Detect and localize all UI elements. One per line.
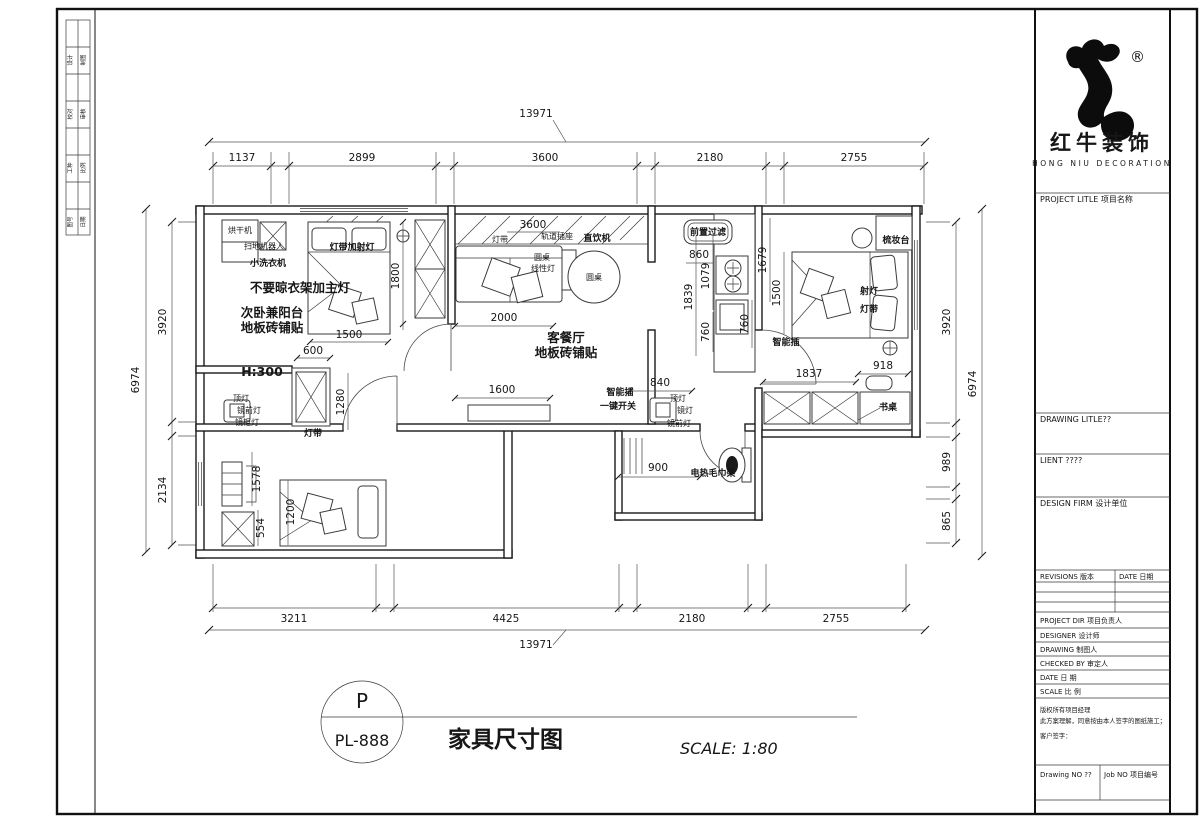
label-linear: 线性灯 [531, 263, 555, 273]
label-towel: 电热毛巾架 [690, 467, 735, 479]
project-dir-row: PROJECT DIR 项目负责人 [1040, 616, 1122, 625]
label-round-table: 圆桌 [586, 272, 602, 282]
dim-top-1: 1137 [229, 152, 256, 164]
dim-1600: 1600 [489, 384, 516, 396]
dim-918: 918 [873, 360, 893, 372]
registered-mark: ® [1130, 48, 1145, 66]
dim-bottom-3: 2180 [679, 613, 706, 625]
desk-chair [866, 376, 892, 390]
dim-554: 554 [255, 518, 267, 538]
label-dome1: 顶灯 [233, 393, 249, 403]
label-dryer: 烘干机 [228, 225, 252, 235]
client-label: LIENT ???? [1040, 456, 1082, 465]
label-dome2: 顶灯 [670, 393, 686, 403]
dim-1280: 1280 [335, 389, 347, 416]
label-mirror2: 镜灯 [677, 405, 693, 415]
label-mini-washer: 小洗衣机 [249, 257, 286, 269]
brand-logo: ® 红牛装饰 HONG NIU DECORATION [1032, 39, 1172, 168]
dim-3600-interior: 3600 [520, 219, 547, 231]
dim-760b: 760 [739, 314, 751, 334]
footer: P PL-888 家具尺寸图 SCALE: 1:80 [321, 681, 857, 763]
edge-cell: 图号 [66, 216, 74, 228]
checked-by-row: CHECKED BY 审定人 [1040, 659, 1108, 668]
label-living-b: 地板砖铺贴 [535, 345, 598, 360]
dim-1200: 1200 [285, 499, 297, 526]
dim-1578: 1578 [251, 466, 263, 493]
label-dresser: 梳妆台 [881, 234, 909, 246]
dim-h300: H:300 [241, 364, 283, 379]
label-strip3: 灯带 [860, 303, 878, 315]
dim-860: 860 [689, 249, 709, 261]
dim-right-overall: 6974 [967, 370, 979, 397]
edge-cell: 校对 [66, 108, 74, 120]
dim-760a: 760 [700, 322, 712, 342]
brand-name-en: HONG NIU DECORATION [1032, 159, 1172, 168]
edge-cell: 日期 [80, 216, 87, 228]
dim-top-5: 2755 [841, 152, 868, 164]
edge-cell: 设计 [66, 54, 74, 66]
tag-code: PL-888 [335, 731, 390, 750]
drawing-title-label: DRAWING LITLE?? [1040, 415, 1111, 424]
label-robot: 扫地机器人 [244, 241, 284, 251]
design-firm-label: DESIGN FIRM 设计单位 [1040, 498, 1127, 508]
dim-top-2: 2899 [349, 152, 376, 164]
designer-row: DESIGNER 设计师 [1040, 631, 1100, 640]
dim-top-3: 3600 [532, 152, 559, 164]
label-strip1: 灯带 [304, 427, 322, 439]
project-title-label: PROJECT LITLE 项目名称 [1040, 194, 1133, 204]
customer-sign-label: 客户签字： [1040, 731, 1071, 740]
label-water: 直饮机 [583, 232, 610, 244]
job-no-label: Job NO 项目编号 [1103, 770, 1158, 779]
label-strip-spot: 灯带加射灯 [329, 241, 374, 253]
label-round-small: 圆桌 [534, 252, 550, 262]
bull-logo-icon [1066, 39, 1134, 141]
dim-right-1: 3920 [941, 309, 953, 336]
date-row: DATE 日 期 [1040, 674, 1077, 682]
dimension-chains: 13971 1137 2899 3600 2180 2755 3211 4425… [130, 108, 986, 651]
scale-label: SCALE: 1:80 [680, 739, 778, 758]
label-room2-b: 地板砖铺贴 [241, 320, 304, 335]
label-no-rack: 不要晾衣架加主灯 [250, 280, 351, 295]
label-mirror-front1: 镜前灯 [237, 405, 261, 415]
label-living-a: 客餐厅 [546, 330, 585, 345]
label-mirror-cab: 镜柜灯 [235, 417, 259, 427]
revision-date-label: DATE 日期 [1119, 573, 1153, 581]
dim-top-4: 2180 [697, 152, 724, 164]
scale-row: SCALE 比 例 [1040, 687, 1081, 696]
label-prefilter: 前置过滤 [690, 226, 726, 238]
label-mirror-front2: 镜前灯 [667, 418, 691, 428]
dim-right-2: 989 [941, 452, 953, 472]
tv-console [468, 405, 550, 421]
dim-900: 900 [648, 462, 668, 474]
dim-1839: 1839 [683, 284, 695, 311]
label-strip2: 灯带 [492, 234, 508, 244]
label-smart2: 智能插 [772, 336, 799, 348]
dim-bottom-1: 3211 [281, 613, 308, 625]
dim-1800: 1800 [390, 263, 402, 290]
label-smart1: 智能插 [606, 386, 633, 398]
drawing-name: 家具尺寸图 [448, 726, 563, 753]
dim-left-2: 2134 [157, 476, 169, 503]
title-block: ® 红牛装饰 HONG NIU DECORATION PROJECT LITLE… [1032, 39, 1172, 800]
brand-name-cn: 红牛装饰 [1050, 131, 1154, 155]
dim-bottom-4: 2755 [823, 613, 850, 625]
edge-cell: 审核 [79, 108, 87, 120]
edge-cell: 工种 [66, 162, 74, 174]
label-onekey: 一键开关 [600, 400, 636, 412]
edge-cell: 比例 [79, 162, 87, 174]
drawing-no-label: Drawing NO ?? [1040, 771, 1092, 779]
label-desk: 书桌 [879, 401, 898, 413]
tag-letter: P [356, 689, 368, 713]
dim-left-1: 3920 [157, 309, 169, 336]
edge-cell: 制图 [79, 54, 87, 66]
dim-2000: 2000 [491, 312, 518, 324]
edge-strip: 设计 制图 校对 审核 工种 比例 图号 日期 [66, 20, 90, 235]
dim-1837: 1837 [796, 368, 823, 380]
dim-1079: 1079 [700, 263, 712, 290]
label-track-socket: 轨道插座 [541, 231, 573, 241]
dim-1500: 1500 [336, 329, 363, 341]
revisions-label: REVISIONS 版本 [1040, 572, 1094, 581]
drawing-canvas: 设计 制图 校对 审核 工种 比例 图号 日期 ® 红牛装饰 HONG NIU … [0, 0, 1200, 824]
furniture [222, 214, 912, 546]
cad-sheet: 设计 制图 校对 审核 工种 比例 图号 日期 ® 红牛装饰 HONG NIU … [0, 0, 1200, 824]
copyright-line1: 版权所有项目经理 [1040, 705, 1091, 714]
copyright-line2: 此方案理解，同意按由本人签字的图纸施工； [1040, 716, 1166, 725]
dim-1679: 1679 [757, 247, 769, 274]
dim-840: 840 [650, 377, 670, 389]
label-spot: 射灯 [859, 285, 878, 297]
dim-600: 600 [303, 345, 323, 357]
dim-right-3: 865 [941, 511, 953, 531]
dim-bottom-2: 4425 [493, 613, 520, 625]
label-room2-a: 次卧兼阳台 [241, 305, 304, 320]
dim-bottom-overall: 13971 [519, 639, 552, 651]
dim-left-overall: 6974 [130, 366, 142, 393]
dim-top-overall: 13971 [519, 108, 552, 120]
stool [852, 228, 872, 248]
drawing-row: DRAWING 制图人 [1040, 645, 1097, 654]
dim-1500m: 1500 [771, 280, 783, 307]
